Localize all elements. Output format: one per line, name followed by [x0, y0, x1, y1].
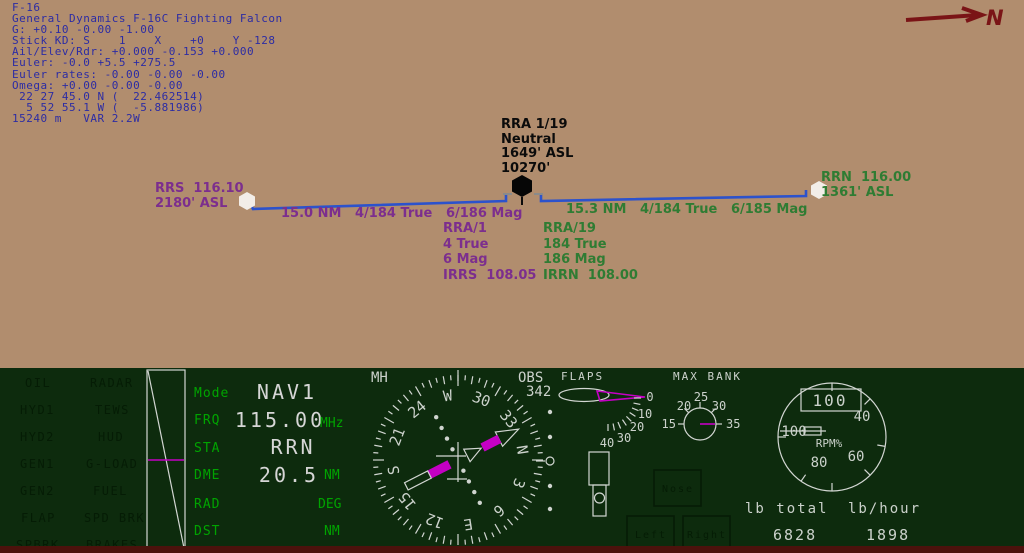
max-bank-label: MAX BANK — [673, 370, 742, 383]
rpm-digital-value: 100 — [813, 391, 848, 410]
hsi-compass: MH OBS 342 N 3 6 E 12 15 S 21 24 W 30 — [371, 370, 551, 545]
airfoil-symbol — [559, 389, 609, 402]
obs-value[interactable]: 342 — [526, 384, 551, 400]
nav-row-label: DST — [194, 524, 220, 539]
approach-info-rra19: RRA/19 184 True 186 Mag IRRN 108.00 — [543, 221, 638, 283]
nav-mode-value[interactable]: NAV1 — [257, 380, 317, 404]
card-label: E — [462, 515, 474, 534]
flaps-tick-label: 20 — [630, 420, 644, 434]
card-label: W — [442, 386, 455, 405]
glideslope-scale — [536, 410, 554, 511]
instrument-panel: OIL HYD1 HYD2 GEN1 GEN2 FLAP SPBRK RADAR… — [0, 368, 1024, 553]
flaps-tick-label: 30 — [617, 431, 631, 445]
heading-mode-label: MH — [371, 370, 388, 386]
flaps-tick-label: 40 — [600, 436, 614, 450]
nav-radio-display: Mode FRQ STA DME RAD DST NAV1 115.00 RRN… — [194, 380, 343, 539]
station-label-rrs: RRS 116.10 2180' ASL — [155, 181, 244, 211]
rpm-gauge: 100 40 60 80 100 RPM% — [778, 383, 886, 491]
card-label: N — [513, 444, 532, 456]
nav-row-label: STA — [194, 441, 220, 456]
nav-row-label: FRQ — [194, 413, 220, 428]
nav-unit: NM — [324, 524, 340, 539]
bank-tick-label: 20 — [677, 399, 691, 413]
nav-unit: NM — [324, 468, 340, 483]
warning-label: TEWS — [95, 403, 130, 417]
flaps-tick-label: 0 — [646, 390, 653, 404]
bank-tick-label: 15 — [662, 417, 676, 431]
card-label: 21 — [386, 425, 409, 448]
approach-info-rra1: RRA/1 4 True 6 Mag IRRS 108.05 — [443, 221, 536, 283]
warning-label: GEN1 — [20, 457, 55, 471]
card-label: 3 — [509, 476, 529, 491]
warning-label: RADAR — [90, 376, 134, 390]
course-needle — [403, 422, 523, 493]
route-leg-right — [541, 190, 806, 201]
warning-label: GEN2 — [20, 484, 55, 498]
nav-frequency-value[interactable]: 115.00 — [235, 408, 325, 432]
nav-row-label: DME — [194, 468, 220, 483]
panel-graphics: OIL HYD1 HYD2 GEN1 GEN2 FLAP SPBRK RADAR… — [0, 368, 1024, 553]
warning-label: HUD — [98, 430, 124, 444]
flaps-gauge: FLAPS 0 10 20 30 40 — [559, 370, 654, 450]
nav-unit: MHz — [320, 416, 343, 431]
north-label: N — [986, 6, 1004, 30]
station-label-rrn: RRN 116.00 1361' ASL — [821, 170, 911, 200]
gear-right-label: Right — [687, 530, 727, 541]
gear-nose-label: Nose — [662, 484, 694, 495]
bottom-bezel-strip — [0, 546, 1024, 553]
rpm-tick-label: 100 — [781, 424, 806, 440]
rpm-unit-label: RPM% — [816, 437, 843, 450]
warning-label: FLAP — [21, 511, 56, 525]
bank-tick-label: 35 — [726, 417, 740, 431]
warning-label: HYD2 — [20, 430, 55, 444]
station-label-rra: RRA 1/19 Neutral 1649' ASL 10270' — [501, 118, 573, 176]
flaps-needle — [597, 391, 645, 401]
warning-label: G-LOAD — [86, 457, 138, 471]
gear-left-label: Left — [635, 530, 667, 541]
card-label: S — [384, 464, 403, 476]
fuel-readouts: lb total lb/hour 6828 1898 — [745, 501, 921, 544]
nav-dme-value: 20.5 — [259, 463, 319, 487]
telemetry-readout: F-16 General Dynamics F-16C Fighting Fal… — [12, 2, 283, 124]
gear-indicators: Nose Left Right — [627, 470, 730, 552]
leg-label-left: 15.0 NM 4/184 True 6/186 Mag — [281, 206, 522, 221]
card-label: 30 — [470, 388, 493, 411]
flaps-label: FLAPS — [561, 370, 604, 383]
warning-label: HYD1 — [20, 403, 55, 417]
station-marker-rra — [512, 175, 532, 197]
rpm-tick-label: 40 — [854, 409, 871, 425]
nav-row-label: RAD — [194, 497, 220, 512]
map-view: F-16 General Dynamics F-16C Fighting Fal… — [0, 0, 1024, 368]
rpm-tick-label: 60 — [848, 449, 865, 465]
nav-unit: DEG — [318, 497, 342, 512]
vertical-tape-gauge — [147, 370, 185, 549]
card-label: 12 — [423, 509, 446, 532]
nav-row-label: Mode — [194, 386, 229, 401]
max-bank-gauge: MAX BANK 15 20 25 30 35 — [662, 370, 742, 440]
fuel-total-value: 6828 — [773, 526, 817, 544]
warning-lights: OIL HYD1 HYD2 GEN1 GEN2 FLAP SPBRK RADAR… — [16, 376, 145, 552]
bank-tick-label: 30 — [712, 399, 726, 413]
warning-label: SPD BRK — [84, 511, 145, 525]
fuel-flow-label: lb/hour — [848, 501, 921, 517]
warning-label: FUEL — [93, 484, 128, 498]
gear-strut-icon — [589, 452, 609, 516]
leg-label-right: 15.3 NM 4/184 True 6/185 Mag — [566, 202, 807, 217]
fuel-total-label: lb total — [745, 501, 828, 517]
rpm-tick-label: 80 — [811, 455, 828, 471]
warning-label: OIL — [25, 376, 51, 390]
flaps-tick-label: 10 — [638, 407, 652, 421]
card-label: 6 — [490, 501, 508, 521]
nav-station-value: RRN — [270, 435, 315, 459]
fuel-flow-value: 1898 — [866, 526, 910, 544]
flight-sim-screen: F-16 General Dynamics F-16C Fighting Fal… — [0, 0, 1024, 553]
bank-tick-label: 25 — [694, 390, 708, 404]
